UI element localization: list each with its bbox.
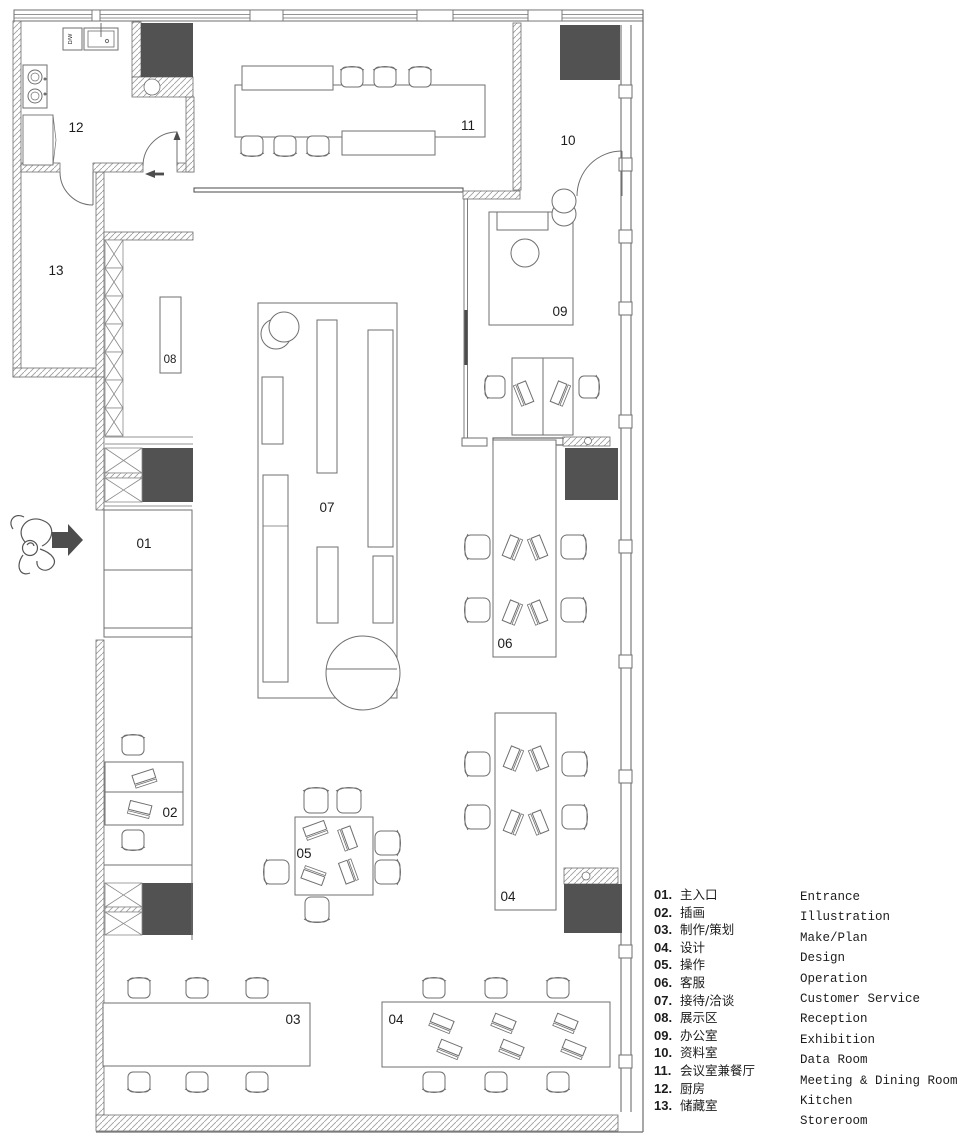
swivel-chair <box>465 534 491 560</box>
counter-unit <box>368 330 393 547</box>
legend-label-en: Entrance <box>800 887 960 907</box>
legend-number: 06. <box>654 974 680 992</box>
chair <box>484 978 508 999</box>
legend-column-en: Entrance Illustration Make/Plan Design O… <box>800 887 960 1132</box>
floor-plan-svg: 01 02 03 04 04 05 06 07 08 09 10 11 12 1… <box>0 0 660 1140</box>
legend-row: 08.展示区 <box>654 1009 804 1027</box>
legend-label-zh: 展示区 <box>680 1010 718 1025</box>
legend-number: 12. <box>654 1080 680 1098</box>
sink-drain <box>105 39 108 42</box>
legend-label-en: Data Room <box>800 1050 960 1070</box>
doors <box>60 131 622 205</box>
legend-number: 05. <box>654 956 680 974</box>
swivel-chair <box>304 897 330 923</box>
chair <box>245 1072 269 1093</box>
counter-unit <box>317 547 338 623</box>
swivel-chair <box>264 859 290 885</box>
legend-label-en: Meeting & Dining Room <box>800 1071 960 1091</box>
legend-label-zh: 办公室 <box>680 1028 718 1043</box>
desk-tray <box>497 212 548 230</box>
legend-number: 03. <box>654 921 680 939</box>
work-desk <box>495 713 556 910</box>
chair <box>127 1072 151 1093</box>
bench <box>342 131 435 155</box>
chair <box>422 978 446 999</box>
legend-label-en: Kitchen <box>800 1091 960 1111</box>
swivel-chair <box>465 751 491 777</box>
legend-label-zh: 操作 <box>680 957 705 972</box>
legend-label-en: Design <box>800 948 960 968</box>
legend-label-zh: 厨房 <box>680 1081 705 1096</box>
room-label-11: 11 <box>461 118 475 133</box>
fridge <box>23 115 53 165</box>
room-label-13: 13 <box>48 263 63 278</box>
area-05-operation <box>264 788 401 923</box>
chair <box>306 136 330 157</box>
legend-label-zh: 接待/洽谈 <box>680 993 734 1008</box>
chair <box>185 1072 209 1093</box>
counter-unit <box>373 556 393 623</box>
stool <box>269 312 299 342</box>
legend-label-en: Storeroom <box>800 1111 960 1131</box>
legend-row: 07.接待/洽谈 <box>654 992 804 1010</box>
swivel-chair <box>561 597 587 623</box>
room-label-01: 01 <box>136 536 151 551</box>
data-room-door-arc <box>577 151 622 196</box>
area-03-make-plan <box>103 978 310 1093</box>
kitchen-door-arc <box>143 132 177 166</box>
room-label-03: 03 <box>285 1012 300 1027</box>
meeting-table <box>235 85 485 137</box>
legend-label-zh: 插画 <box>680 905 705 920</box>
legend-label-zh: 主入口 <box>680 887 718 902</box>
legend-label-en: Exhibition <box>800 1030 960 1050</box>
storeroom-door-arc <box>60 172 93 205</box>
legend-row: 11.会议室兼餐厅 <box>654 1062 804 1080</box>
legend-label-en: Reception <box>800 1009 960 1029</box>
legend-label-zh: 制作/策划 <box>680 922 734 937</box>
legend-row: 09.办公室 <box>654 1027 804 1045</box>
shaft-top-right <box>560 25 620 80</box>
chair <box>127 978 151 999</box>
chair <box>579 375 600 399</box>
chair <box>121 830 145 851</box>
room-label-07: 07 <box>319 500 334 515</box>
side-table <box>552 189 576 213</box>
shaft-lower-right <box>564 884 622 933</box>
room-label-08: 08 <box>164 354 177 366</box>
legend-label-zh: 设计 <box>680 940 705 955</box>
chair <box>408 67 432 88</box>
legend-label-en: Illustration <box>800 907 960 927</box>
floor-plan-page: 01 02 03 04 04 05 06 07 08 09 10 11 12 1… <box>0 0 960 1140</box>
counter-unit <box>262 377 283 444</box>
legend-number: 11. <box>654 1062 680 1080</box>
legend-label-zh: 储藏室 <box>680 1098 718 1113</box>
legend-number: 08. <box>654 1009 680 1027</box>
legend-number: 01. <box>654 886 680 904</box>
room-label-02: 02 <box>162 805 177 820</box>
legend-column-zh: 01.主入口 02.插画 03.制作/策划 04.设计 05.操作 06.客服 … <box>654 886 804 1115</box>
shaft-lower-left <box>142 883 193 935</box>
dishwasher-label: D/W <box>68 33 74 45</box>
chair <box>485 375 506 399</box>
legend-row: 01.主入口 <box>654 886 804 904</box>
chair <box>546 978 570 999</box>
legend-number: 13. <box>654 1097 680 1115</box>
chair <box>373 67 397 88</box>
legend-row: 04.设计 <box>654 939 804 957</box>
legend-row: 03.制作/策划 <box>654 921 804 939</box>
swivel-chair <box>561 534 587 560</box>
shaft-mid-right <box>565 448 618 500</box>
room-label-04-upper: 04 <box>500 889 516 904</box>
legend-label-en: Customer Service <box>800 989 960 1009</box>
room-label-04-lower: 04 <box>388 1012 404 1027</box>
room-label-12: 12 <box>68 120 83 135</box>
swivel-chair <box>375 830 401 856</box>
legend-label-zh: 会议室兼餐厅 <box>680 1063 755 1078</box>
chair <box>484 1072 508 1093</box>
counter-unit <box>263 475 288 682</box>
legend-number: 02. <box>654 904 680 922</box>
legend-row: 13.储藏室 <box>654 1097 804 1115</box>
room-label-09: 09 <box>552 304 567 319</box>
chair <box>273 136 297 157</box>
legend-row: 06.客服 <box>654 974 804 992</box>
legend-number: 10. <box>654 1044 680 1062</box>
area-02-illustration <box>105 735 183 851</box>
legend-label-zh: 资料室 <box>680 1045 718 1060</box>
swivel-chair <box>562 804 588 830</box>
swivel-chair <box>336 788 362 814</box>
chair <box>121 735 145 756</box>
swivel-chair <box>303 788 329 814</box>
round-chair <box>511 239 539 267</box>
work-desk <box>493 440 556 657</box>
chair <box>340 67 364 88</box>
legend-label-en: Operation <box>800 969 960 989</box>
round-table <box>326 636 400 710</box>
room-label-06: 06 <box>497 636 512 651</box>
area-04-design-lower <box>382 978 610 1093</box>
legend-row: 10.资料室 <box>654 1044 804 1062</box>
swivel-chair <box>465 597 491 623</box>
chair <box>245 978 269 999</box>
bench <box>242 66 333 90</box>
work-table <box>103 1003 310 1066</box>
swivel-chair <box>375 859 401 885</box>
legend-row: 12.厨房 <box>654 1080 804 1098</box>
legend-row: 05.操作 <box>654 956 804 974</box>
room-label-05: 05 <box>296 846 311 861</box>
counter-unit <box>317 320 337 473</box>
legend-row: 02.插画 <box>654 904 804 922</box>
chair <box>422 1072 446 1093</box>
person-figure <box>11 516 55 574</box>
legend-number: 09. <box>654 1027 680 1045</box>
swivel-chair <box>465 804 491 830</box>
shaft-top-left <box>141 23 193 77</box>
shaft-mid-left <box>142 448 193 502</box>
legend-number: 04. <box>654 939 680 957</box>
legend-number: 07. <box>654 992 680 1010</box>
legend-label-zh: 客服 <box>680 975 705 990</box>
room-label-10: 10 <box>560 133 575 148</box>
swivel-chair <box>562 751 588 777</box>
entry-arrow-icon <box>145 131 181 178</box>
room-09-office <box>485 189 600 435</box>
entrance-arrow-icon <box>52 524 83 556</box>
chair <box>185 978 209 999</box>
room-11-meeting-dining <box>235 66 485 157</box>
legend-label-en: Make/Plan <box>800 928 960 948</box>
chair <box>240 136 264 157</box>
chair <box>546 1072 570 1093</box>
